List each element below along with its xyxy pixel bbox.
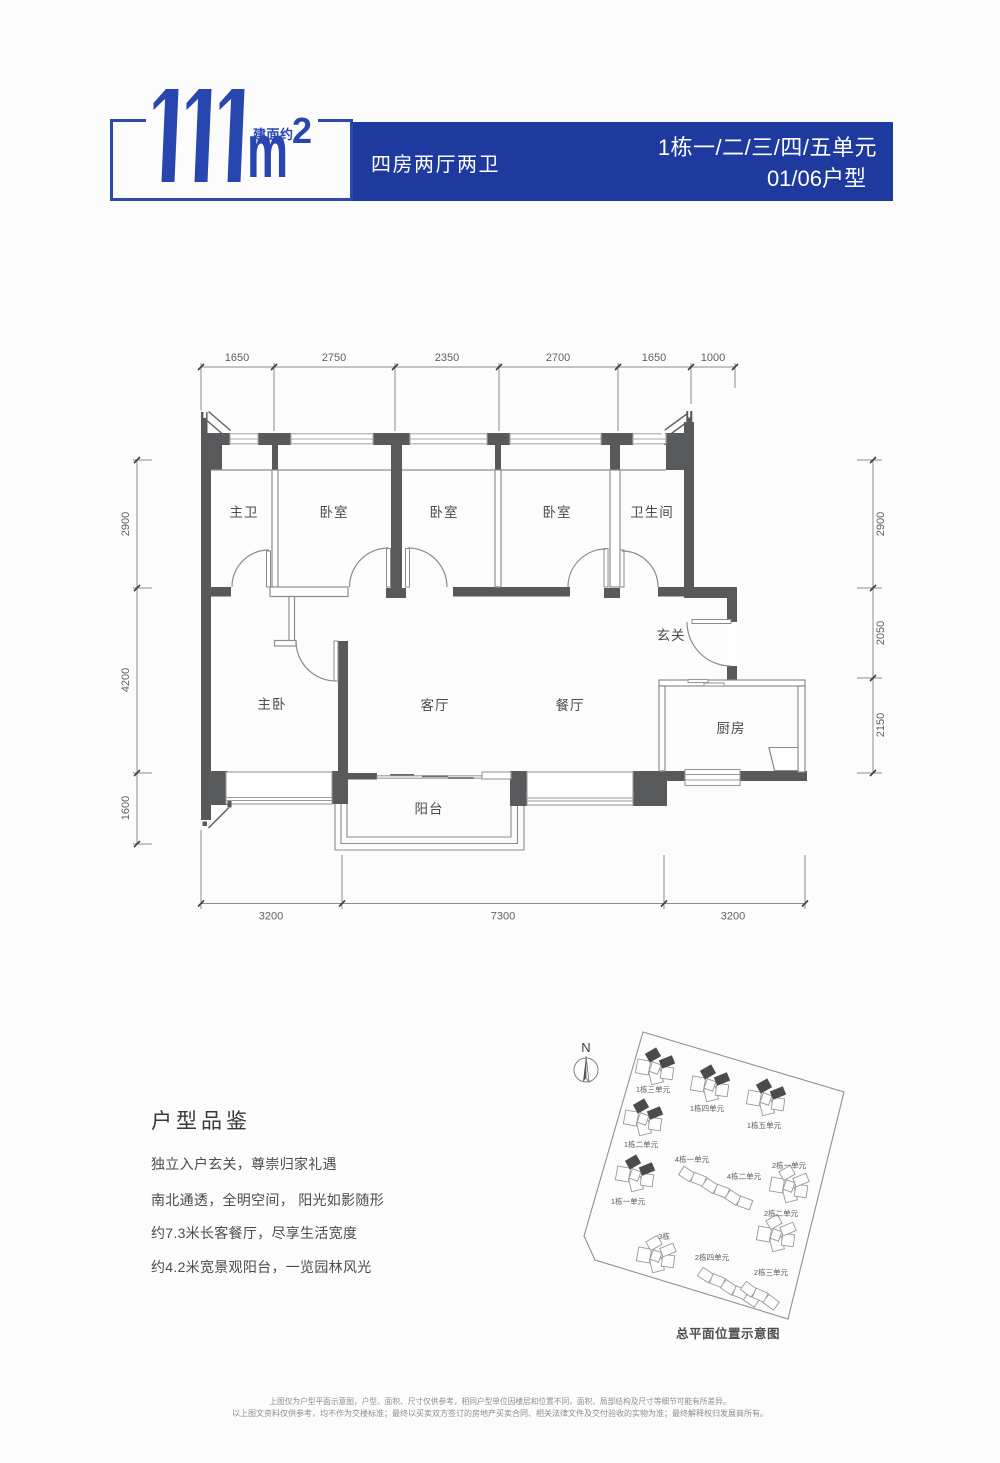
svg-text:阳台: 阳台 <box>415 802 444 817</box>
svg-text:厨房: 厨房 <box>717 721 746 736</box>
svg-text:卧室: 卧室 <box>320 504 349 520</box>
svg-text:4200: 4200 <box>120 668 132 692</box>
svg-text:卫生间: 卫生间 <box>630 505 674 520</box>
svg-text:卧室: 卧室 <box>543 504 572 520</box>
svg-text:主卫: 主卫 <box>230 505 259 520</box>
svg-text:1栋五单元: 1栋五单元 <box>747 1120 782 1130</box>
svg-text:2050: 2050 <box>875 621 887 645</box>
svg-text:1650: 1650 <box>225 352 249 364</box>
svg-text:1000: 1000 <box>701 352 725 364</box>
svg-text:1栋一单元: 1栋一单元 <box>611 1196 646 1206</box>
svg-text:玄关: 玄关 <box>657 627 686 643</box>
svg-text:1栋二单元: 1栋二单元 <box>624 1139 659 1149</box>
svg-text:卧室: 卧室 <box>430 504 459 520</box>
svg-text:1600: 1600 <box>120 796 132 820</box>
svg-text:主卧: 主卧 <box>258 697 287 712</box>
svg-text:2900: 2900 <box>120 512 132 536</box>
svg-text:4栋一单元: 4栋一单元 <box>675 1154 710 1164</box>
svg-text:2栋四单元: 2栋四单元 <box>695 1252 730 1262</box>
svg-text:3200: 3200 <box>721 911 745 923</box>
svg-text:2150: 2150 <box>875 713 887 737</box>
svg-text:3200: 3200 <box>259 911 283 923</box>
svg-text:N: N <box>581 1040 590 1055</box>
svg-text:4栋二单元: 4栋二单元 <box>727 1171 762 1181</box>
svg-text:3栋: 3栋 <box>658 1231 670 1241</box>
svg-text:客厅: 客厅 <box>421 697 450 713</box>
svg-text:2350: 2350 <box>435 352 459 364</box>
svg-text:餐厅: 餐厅 <box>556 698 585 713</box>
svg-text:7300: 7300 <box>491 911 515 923</box>
svg-text:2栋一单元: 2栋一单元 <box>772 1160 807 1170</box>
svg-text:1栋四单元: 1栋四单元 <box>690 1103 725 1113</box>
svg-text:2750: 2750 <box>322 352 346 364</box>
svg-text:2栋三单元: 2栋三单元 <box>754 1267 789 1277</box>
svg-text:2900: 2900 <box>875 512 887 536</box>
svg-text:1栋三单元: 1栋三单元 <box>636 1084 671 1094</box>
svg-text:2栋二单元: 2栋二单元 <box>764 1208 799 1218</box>
svg-text:1650: 1650 <box>642 352 666 364</box>
svg-text:2700: 2700 <box>546 352 570 364</box>
